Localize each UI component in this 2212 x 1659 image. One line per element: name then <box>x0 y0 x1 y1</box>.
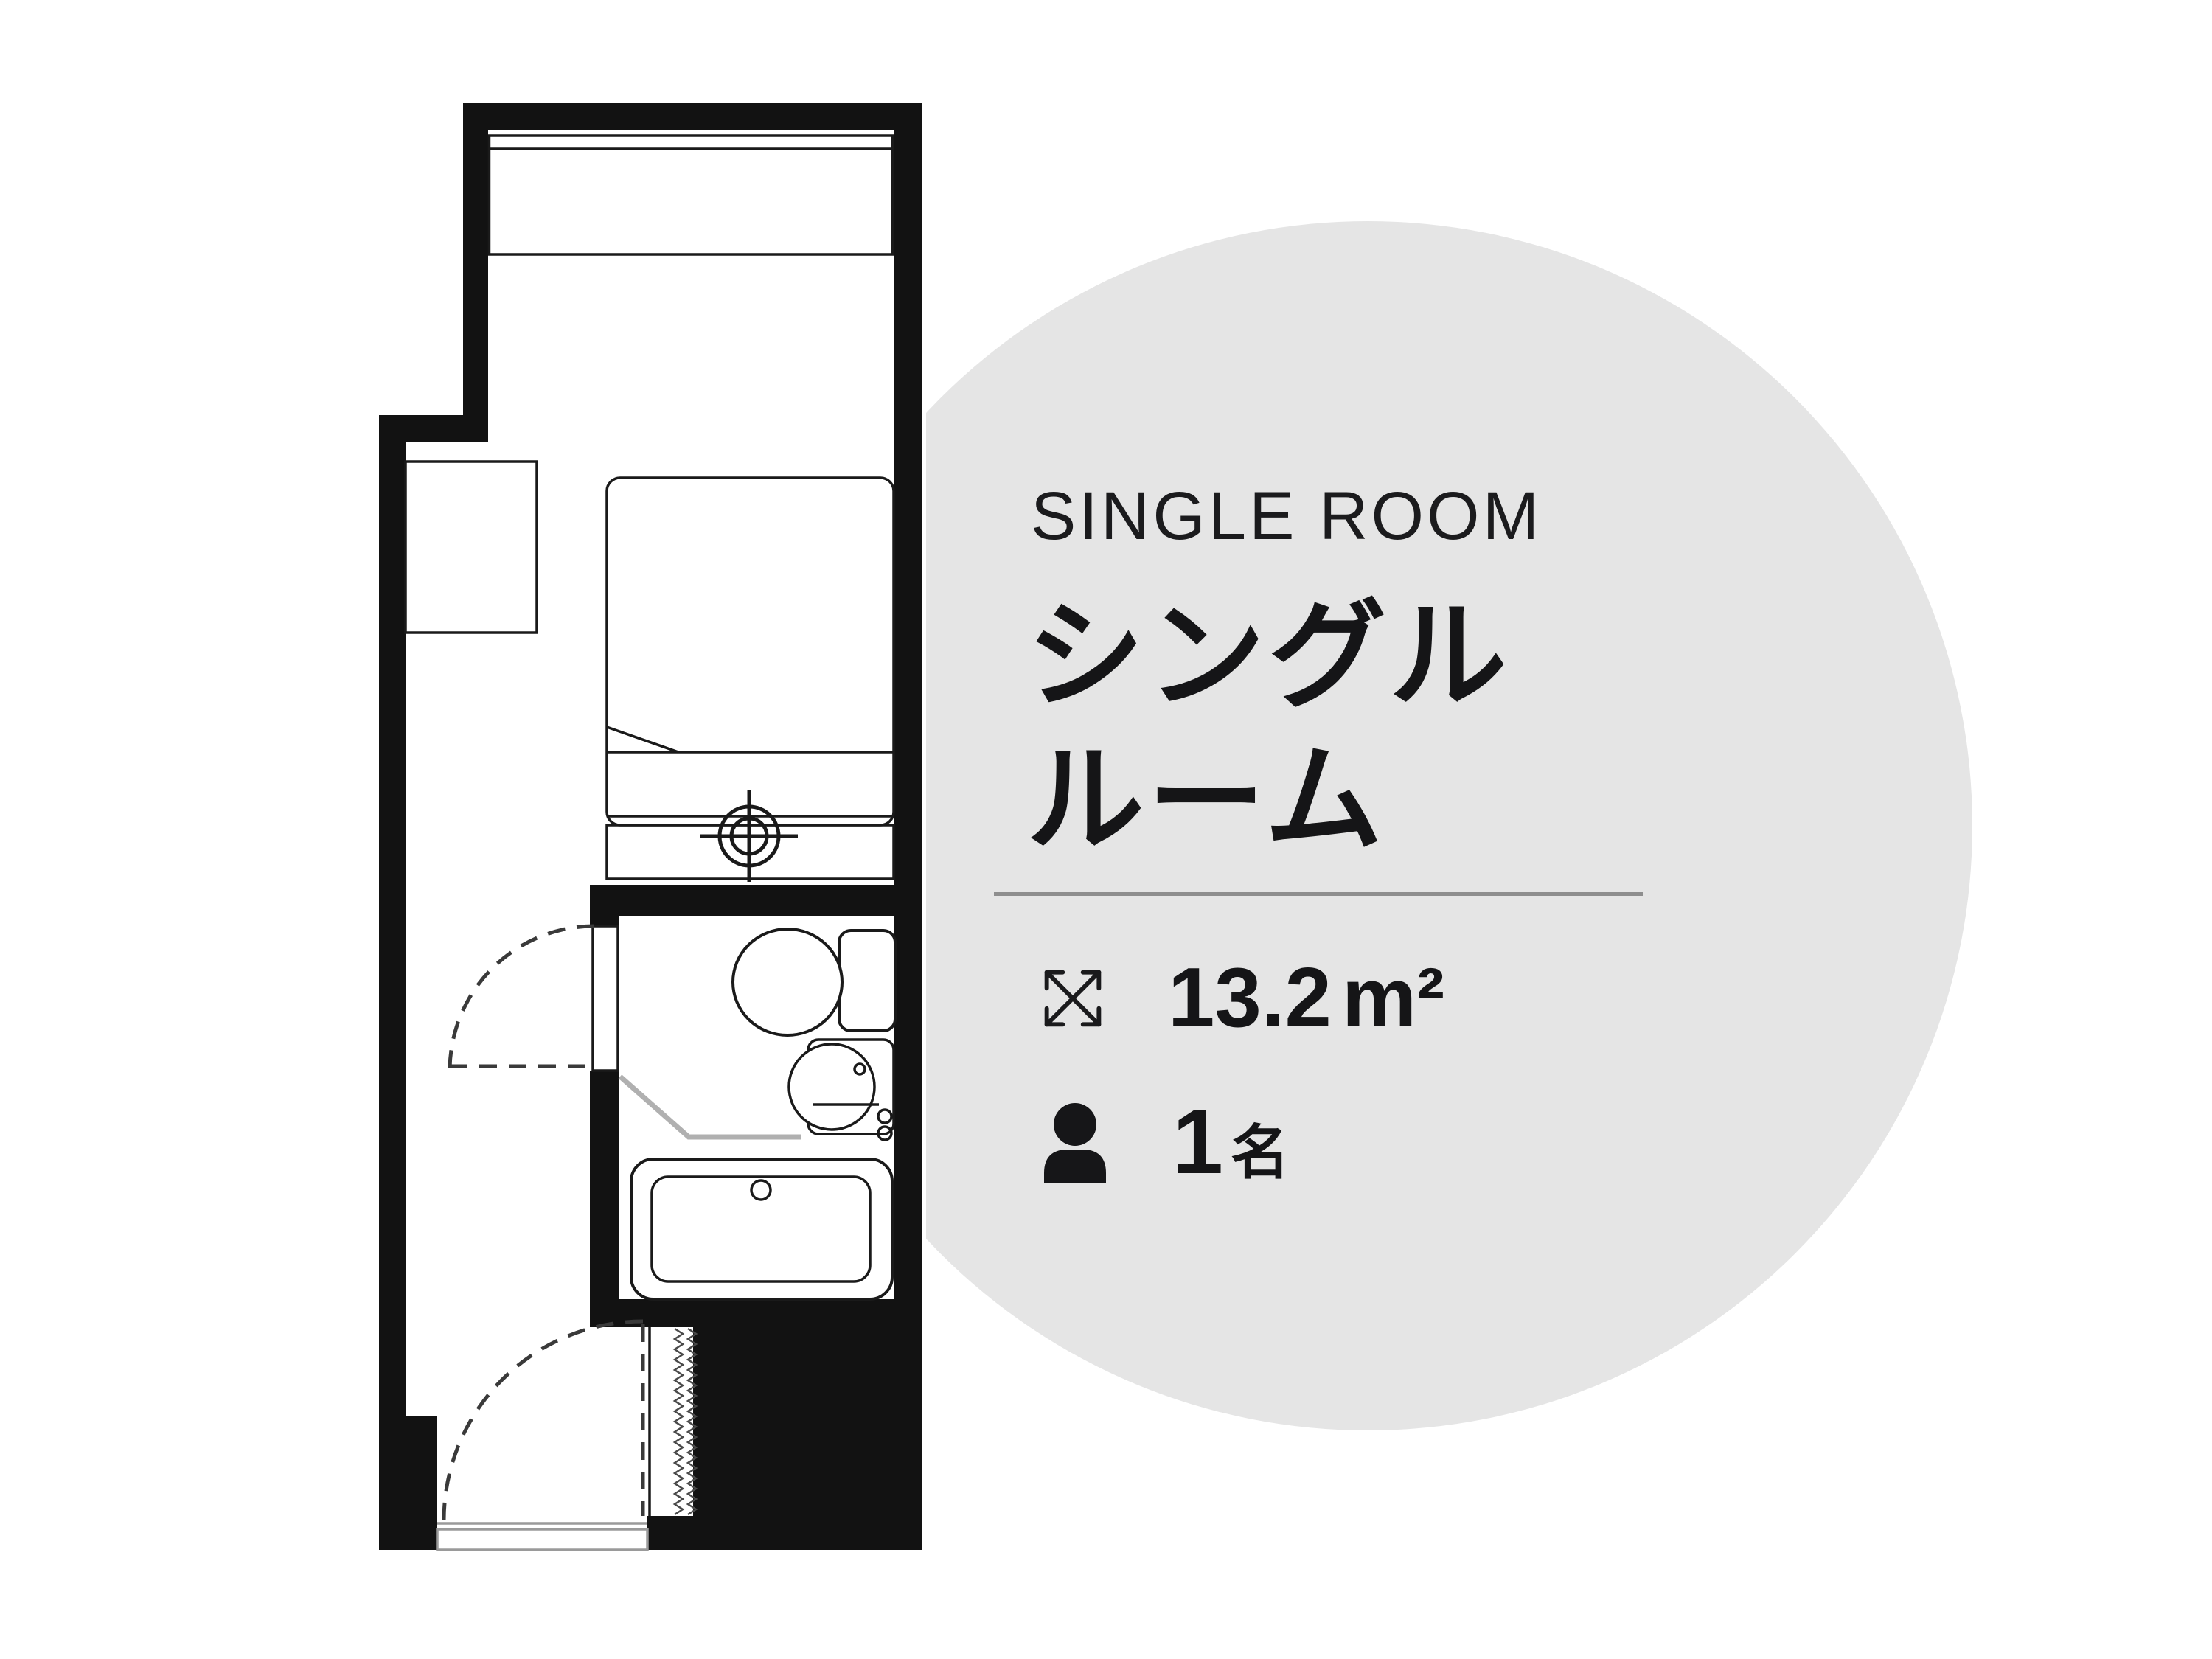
accent-circle <box>763 221 1972 1430</box>
room-info-sheet: SINGLE ROOM シングルルーム 13.2m² 1名 <box>0 0 2212 1659</box>
floor-plan <box>360 86 938 1560</box>
entrance-step <box>437 1529 647 1550</box>
toilet-tank <box>839 931 895 1031</box>
washbasin-bowl <box>789 1044 874 1130</box>
toilet-bowl <box>733 929 842 1035</box>
closet-box <box>406 462 537 633</box>
